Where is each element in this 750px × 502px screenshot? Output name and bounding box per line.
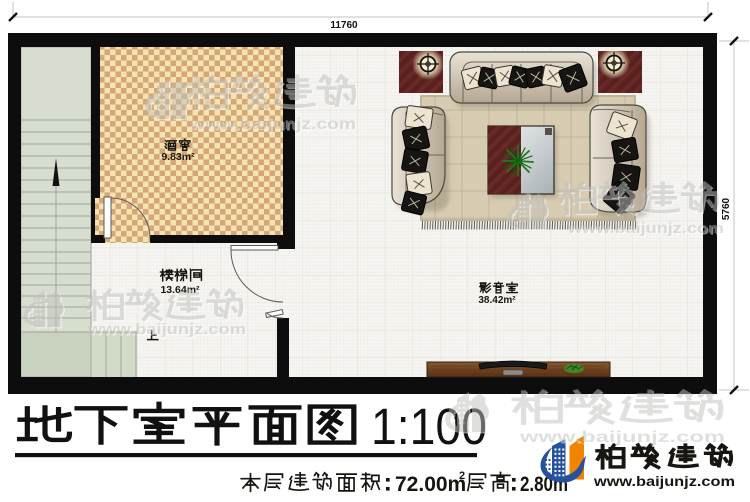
svg-text:9.83m²: 9.83m² [161, 151, 195, 163]
svg-text:www.baijunjz.com: www.baijunjz.com [189, 116, 356, 133]
svg-text:www.baijunjz.com: www.baijunjz.com [519, 429, 725, 446]
svg-text:2: 2 [459, 470, 465, 482]
svg-text:www.baijunjz.com: www.baijunjz.com [87, 321, 246, 338]
svg-text:72.00m: 72.00m [395, 473, 466, 496]
svg-text:www.baijunjz.com: www.baijunjz.com [567, 220, 724, 237]
svg-text:11760: 11760 [330, 20, 358, 31]
svg-text:38.42m²: 38.42m² [478, 295, 516, 306]
svg-text:www.baijunjz.com: www.baijunjz.com [593, 473, 735, 489]
svg-text:5760: 5760 [721, 197, 732, 220]
